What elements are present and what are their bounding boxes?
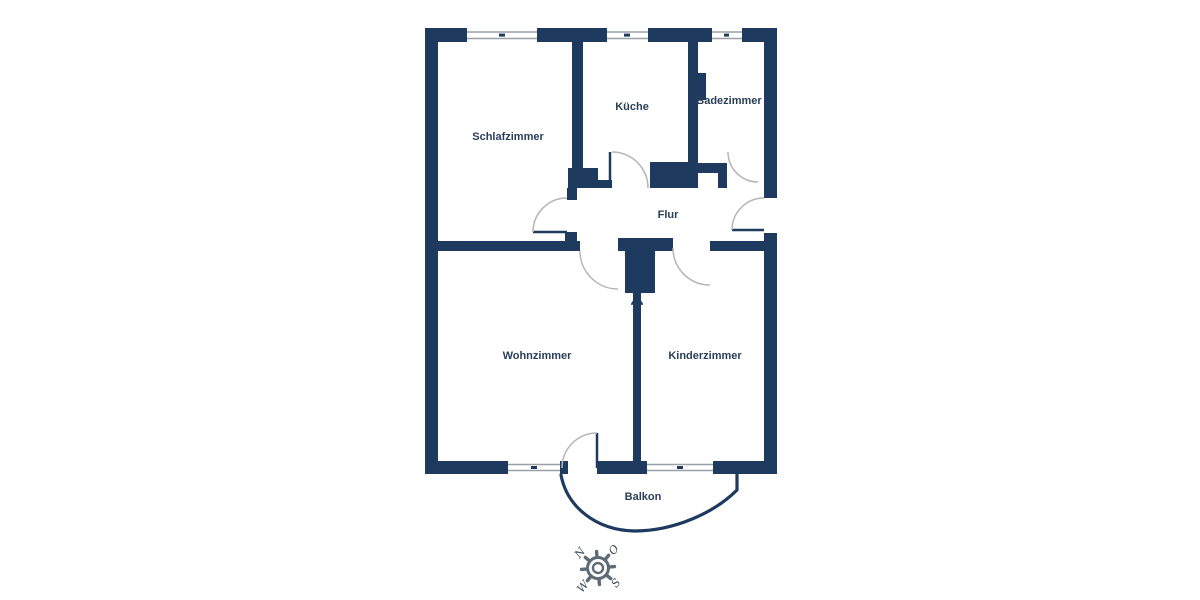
door-arc-entrance (732, 198, 764, 230)
room-label-schlafzimmer: Schlafzimmer (472, 131, 544, 143)
floor-plan: Schlafzimmer Küche Badezimmer Flur Wohnz… (0, 0, 1200, 600)
compass-rose-icon: N O S W (556, 527, 639, 600)
window-badezimmer (712, 32, 742, 39)
room-label-flur: Flur (658, 209, 679, 221)
room-labels: Schlafzimmer Küche Badezimmer Flur Wohnz… (472, 95, 762, 503)
door-arc-schlafzimmer (533, 198, 567, 232)
window-kinderzimmer (647, 465, 713, 471)
room-label-balkon: Balkon (625, 491, 662, 503)
room-label-kinderzimmer: Kinderzimmer (668, 350, 742, 362)
room-label-kueche: Küche (615, 101, 649, 113)
door-arc-kinderzimmer (673, 248, 710, 285)
door-arc-wohnzimmer (580, 251, 618, 289)
window-wohnzimmer (508, 465, 560, 471)
window-schlafzimmer (467, 32, 537, 39)
window-kueche (607, 32, 648, 39)
room-label-badezimmer: Badezimmer (696, 95, 762, 107)
door-arc-kueche (612, 152, 648, 188)
floor-plan-page: Schlafzimmer Küche Badezimmer Flur Wohnz… (0, 0, 1200, 600)
room-label-wohnzimmer: Wohnzimmer (503, 350, 573, 362)
compass-letter-south: S (609, 576, 624, 590)
door-arc-badezimmer (728, 152, 758, 182)
